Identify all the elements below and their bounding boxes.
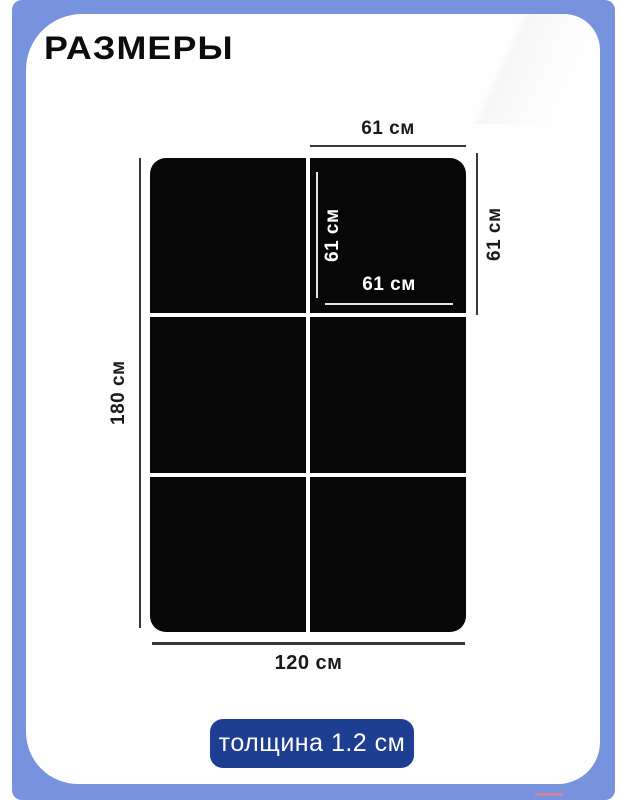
thickness-badge-label: толщина 1.2 см bbox=[219, 729, 406, 758]
dim-tile-height-label: 61 см bbox=[482, 153, 508, 315]
watermark-swoosh bbox=[430, 14, 598, 124]
mat-tile bbox=[310, 477, 466, 632]
dim-inner-height-line bbox=[316, 172, 318, 298]
mat-tile bbox=[150, 158, 306, 313]
mat-grid bbox=[150, 158, 466, 632]
dim-total-height-label: 180 см bbox=[105, 158, 133, 628]
mat-tile bbox=[310, 317, 466, 472]
page-title: РАЗМЕРЫ bbox=[44, 30, 234, 67]
pink-artifact bbox=[535, 793, 563, 796]
dim-inner-width-line bbox=[325, 303, 453, 305]
dim-inner-width-label: 61 см bbox=[325, 272, 453, 298]
dim-total-height-line bbox=[139, 158, 141, 628]
dim-tile-width-line bbox=[310, 145, 466, 147]
dim-tile-width-label: 61 см bbox=[310, 117, 466, 141]
page-background: { "colors": { "frame": "#7793de", "card"… bbox=[0, 0, 640, 800]
dim-tile-height-line bbox=[476, 153, 478, 315]
mat-tile bbox=[150, 317, 306, 472]
dim-total-width-label: 120 см bbox=[152, 650, 465, 676]
mat-tile bbox=[150, 477, 306, 632]
thickness-badge: толщина 1.2 см bbox=[210, 719, 414, 768]
dim-total-width-line bbox=[152, 642, 465, 645]
